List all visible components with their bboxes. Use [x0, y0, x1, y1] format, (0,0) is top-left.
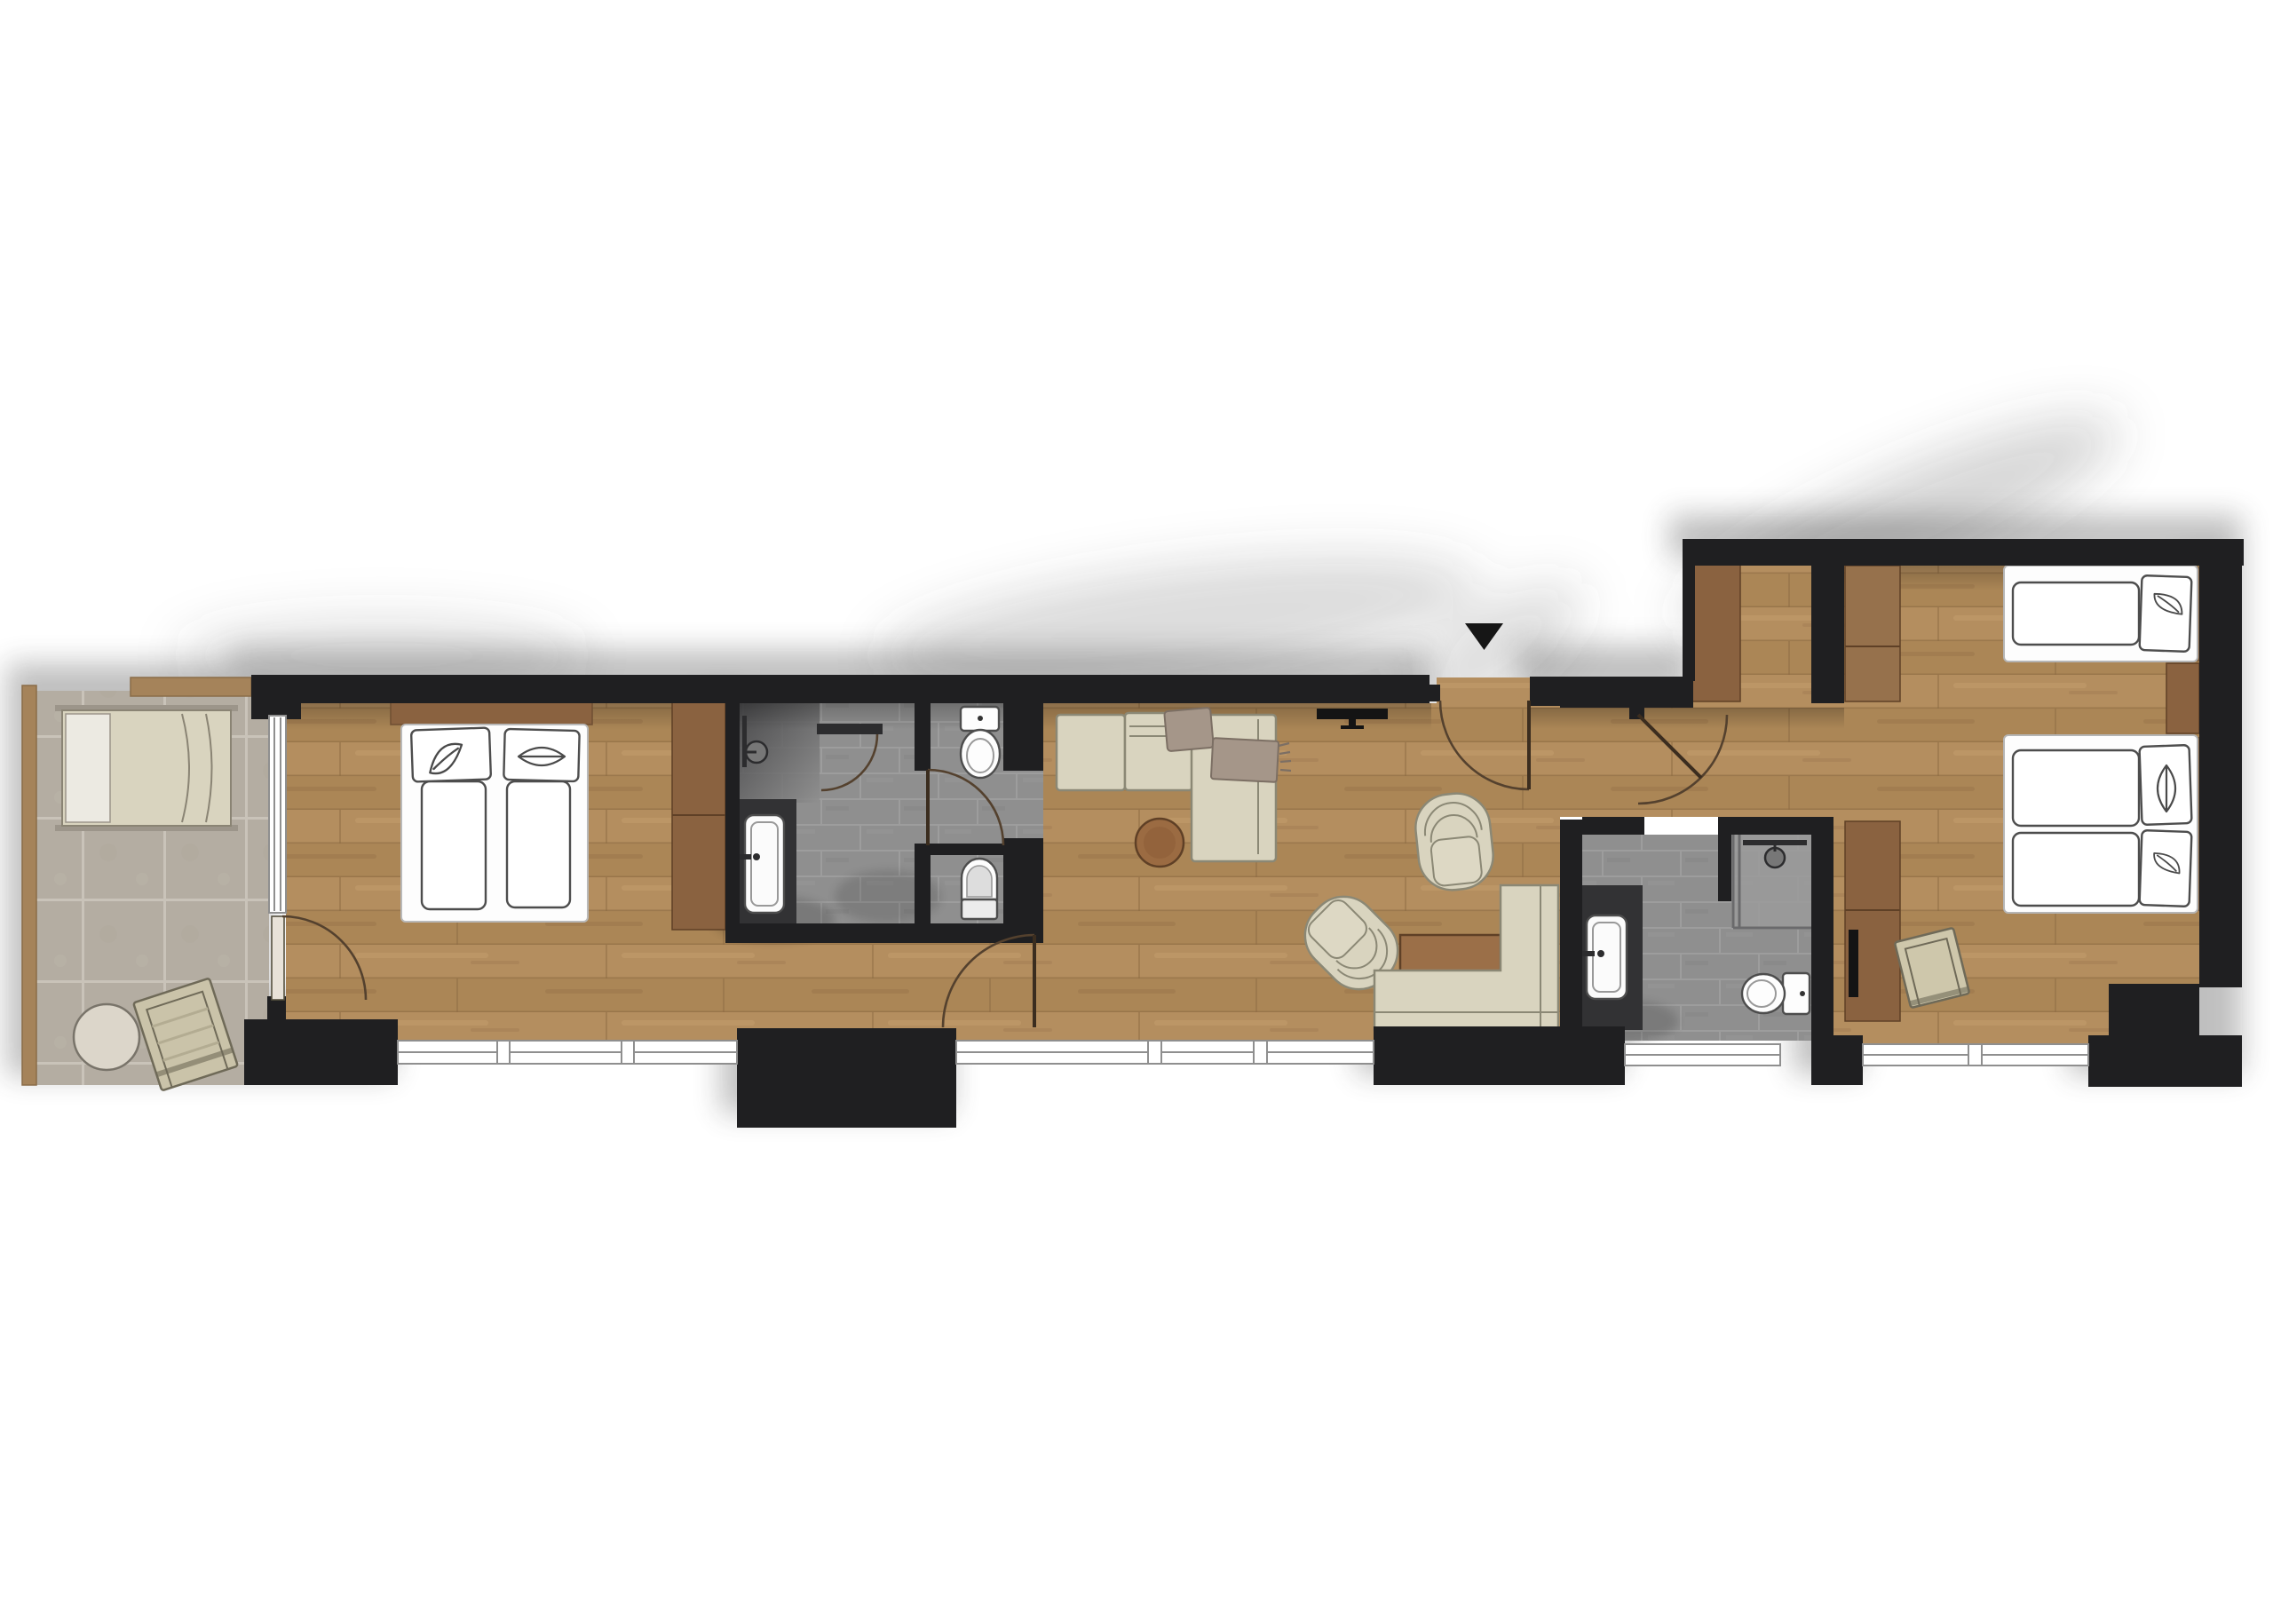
bedroom2-tv-panel: [1849, 930, 1858, 997]
wall-bath2-left: [1560, 820, 1582, 1039]
wall-entry-jamb-left: [1430, 685, 1440, 701]
terrace-door-leaf: [272, 916, 284, 1000]
terrace-wood-edge: [22, 685, 36, 1085]
vanity-basin: [739, 815, 784, 913]
wall-bath1-right-lower: [1003, 838, 1043, 943]
round-coffee-table: [1136, 819, 1184, 867]
armchair-top: [1413, 790, 1497, 893]
wall-right-outer: [2199, 539, 2242, 987]
shower-glass-bar: [817, 724, 883, 734]
entry-threshold: [1437, 677, 1532, 708]
wall-stub-bath2: [1560, 1035, 1625, 1080]
wall-terrace-jamb: [251, 675, 301, 719]
window-bedroom1: [398, 1041, 737, 1064]
wall-entry-jamb-right: [1530, 677, 1560, 706]
wall-bath1-bottom: [725, 923, 1043, 943]
floor-plan-page: [0, 0, 2273, 1624]
wall-bedroom2-left-lower: [1811, 817, 1833, 1039]
wall-stub-bedroom1: [244, 1019, 398, 1085]
sun-lounger: [55, 705, 238, 831]
wall-bath2-door-jamb: [1718, 817, 1731, 901]
sofa-blanket: [1164, 708, 1214, 751]
bedroom2-wardrobe-upper: [1845, 566, 1900, 701]
wall-bath1-partition-lower: [915, 844, 931, 943]
wall-corner-step-lower: [2088, 1035, 2242, 1087]
wall-stub-bedroom2: [1811, 1035, 1863, 1085]
bedroom2-single-bed: [2004, 566, 2201, 661]
bed1-mattress-right: [507, 781, 570, 907]
bedroom2-nightstand: [2166, 663, 2199, 733]
wall-stub-bath1: [737, 1028, 956, 1128]
sofa-ottoman: [1057, 715, 1125, 790]
floor-plan-canvas: [0, 0, 2273, 1624]
wall-terrace-door-stop: [267, 996, 286, 1026]
bedroom2-double-bed: [2004, 735, 2201, 913]
terrace-wood-sill: [131, 677, 251, 696]
lounger-cushion: [66, 714, 110, 822]
hall-wardrobe-column: [1691, 561, 1740, 701]
wall-bath1-right-upper: [1003, 703, 1043, 771]
bed1-mattress-left: [422, 781, 486, 909]
wall-top-right-section: [1683, 539, 2244, 566]
wall-bedroom2-left-upper: [1811, 566, 1844, 703]
wall-bath1-left: [725, 703, 740, 943]
bed1-pillow-left: [411, 727, 491, 781]
wall-corner-step-upper: [2109, 984, 2199, 1039]
window-bathroom2: [1625, 1044, 1780, 1066]
toilet-upper: [961, 707, 1000, 778]
bathroom2-toilet: [1742, 973, 1810, 1014]
window-living: [956, 1041, 1374, 1064]
round-side-table: [74, 1004, 139, 1070]
toilet-lower: [962, 859, 997, 919]
bed1-pillow-right: [503, 729, 579, 781]
bathroom2-basin: [1581, 915, 1627, 999]
wall-alcove-left: [1683, 539, 1695, 681]
window-bedroom2: [1863, 1044, 2088, 1066]
wall-top-main: [251, 675, 1430, 703]
wall-bath2-top-right: [1718, 817, 1833, 835]
bed1-headboard: [391, 700, 592, 725]
wall-bath2-top-left: [1582, 817, 1644, 835]
terrace-glazed-door: [269, 716, 286, 913]
wall-corridor-top: [1560, 677, 1693, 708]
wall-bath1-partition-upper: [915, 703, 931, 771]
